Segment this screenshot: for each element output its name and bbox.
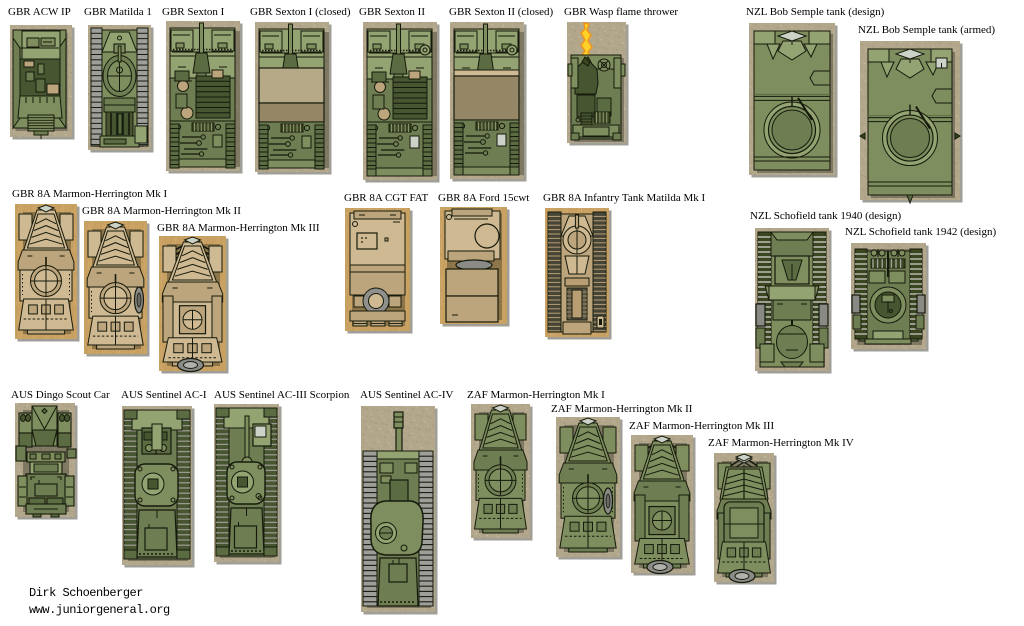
svg-text:www.juniorgeneral.org: www.juniorgeneral.org <box>29 603 170 617</box>
svg-text:AUS Sentinel AC-I: AUS Sentinel AC-I <box>121 389 207 401</box>
svg-text:GBR Matilda 1: GBR Matilda 1 <box>84 6 152 18</box>
svg-text:GBR ACW IP: GBR ACW IP <box>8 6 71 18</box>
svg-text:GBR 8A Marmon-Herrington Mk II: GBR 8A Marmon-Herrington Mk III <box>157 222 320 234</box>
svg-text:NZL Schofield tank 1940 (desig: NZL Schofield tank 1940 (design) <box>750 210 901 222</box>
svg-text:GBR Wasp flame thrower: GBR Wasp flame thrower <box>564 6 678 18</box>
svg-text:GBR 8A Ford 15cwt: GBR 8A Ford 15cwt <box>438 192 529 204</box>
svg-text:GBR 8A Marmon-Herrington Mk I: GBR 8A Marmon-Herrington Mk I <box>12 188 168 200</box>
svg-text:NZL Bob Semple tank (design): NZL Bob Semple tank (design) <box>746 6 885 18</box>
svg-text:ZAF Marmon-Herrington Mk III: ZAF Marmon-Herrington Mk III <box>629 420 774 432</box>
svg-text:GBR 8A Infantry Tank Matilda M: GBR 8A Infantry Tank Matilda Mk I <box>543 192 706 204</box>
svg-text:NZL Bob Semple tank (armed): NZL Bob Semple tank (armed) <box>858 24 995 36</box>
svg-text:AUS Dingo Scout Car: AUS Dingo Scout Car <box>11 389 110 401</box>
svg-text:ZAF Marmon-Herrington Mk IV: ZAF Marmon-Herrington Mk IV <box>708 437 854 449</box>
svg-text:ZAF Marmon-Herrington Mk II: ZAF Marmon-Herrington Mk II <box>551 403 693 415</box>
svg-text:GBR 8A CGT FAT: GBR 8A CGT FAT <box>344 192 429 204</box>
svg-text:ZAF Marmon-Herrington Mk I: ZAF Marmon-Herrington Mk I <box>467 389 605 401</box>
svg-text:NZL Schofield tank 1942 (desig: NZL Schofield tank 1942 (design) <box>845 226 996 238</box>
svg-text:AUS Sentinel AC-III Scorpion: AUS Sentinel AC-III Scorpion <box>214 389 350 401</box>
svg-text:GBR Sexton II: GBR Sexton II <box>359 6 425 18</box>
svg-text:Dirk Schoenberger: Dirk Schoenberger <box>29 586 143 600</box>
svg-text:GBR Sexton II (closed): GBR Sexton II (closed) <box>449 6 554 18</box>
svg-text:GBR 8A Marmon-Herrington Mk II: GBR 8A Marmon-Herrington Mk II <box>82 205 241 217</box>
svg-text:GBR Sexton I (closed): GBR Sexton I (closed) <box>250 6 351 18</box>
svg-text:AUS Sentinel AC-IV: AUS Sentinel AC-IV <box>360 389 454 401</box>
svg-text:GBR Sexton I: GBR Sexton I <box>162 6 225 18</box>
